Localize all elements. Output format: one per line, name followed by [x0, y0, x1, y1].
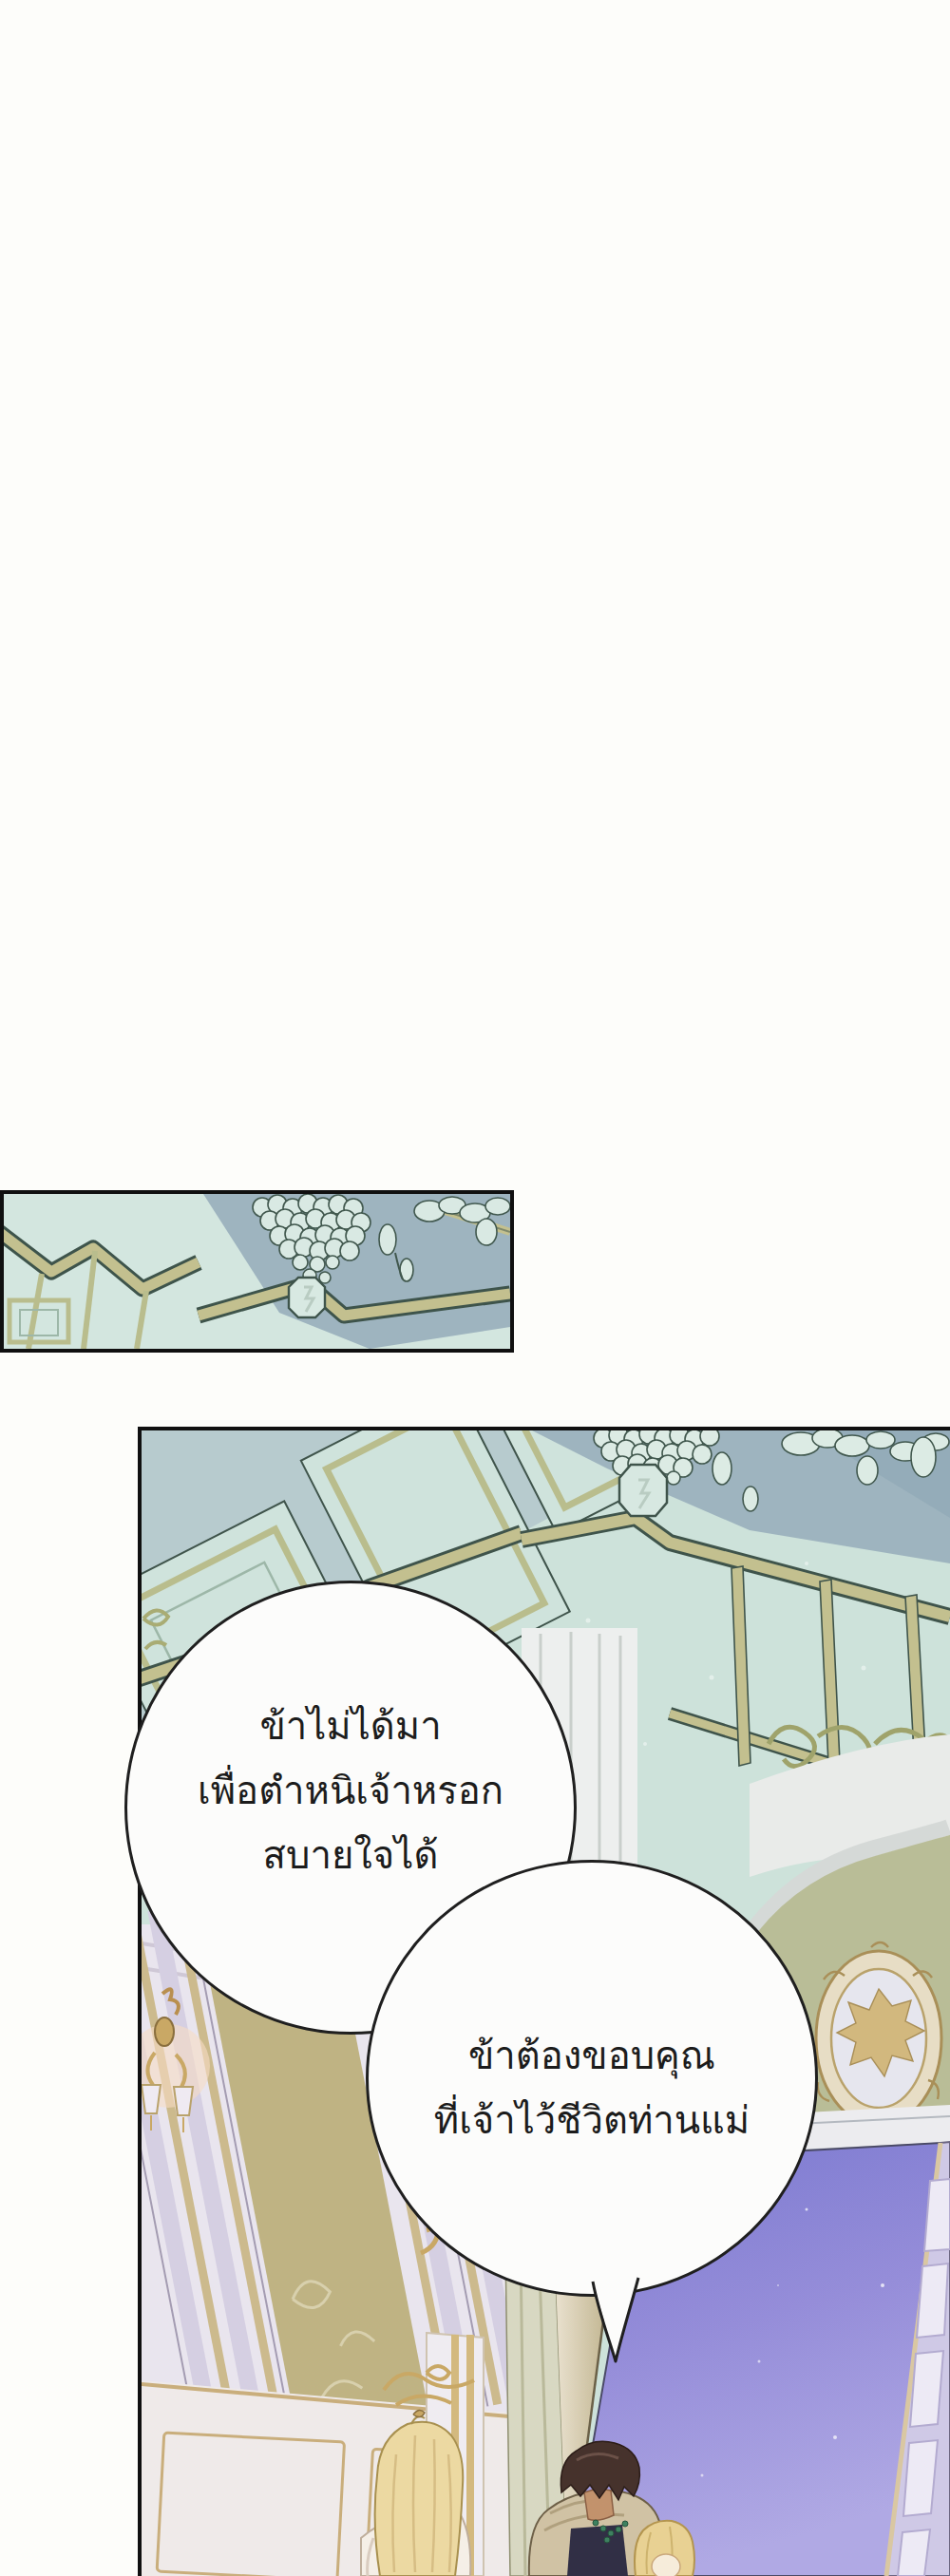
bubble1-line: สบายใจได้	[263, 1823, 439, 1887]
speech-bubble-2: ข้าต้องขอบคุณ ที่เจ้าไว้ชีวิตท่านแม่	[366, 1860, 818, 2297]
speech-bubble-tail	[581, 2274, 648, 2369]
bubble2-line: ที่เจ้าไว้ชีวิตท่านแม่	[434, 2088, 750, 2152]
bubble2-line: ข้าต้องขอบคุณ	[468, 2023, 715, 2088]
comic-page: ข้าไม่ได้มา เพื่อตำหนิเจ้าหรอก สบายใจได้…	[0, 0, 950, 2576]
panel-ceiling-strip	[0, 1190, 514, 1353]
child-blonde	[635, 2521, 694, 2576]
ceiling-strip-art	[4, 1194, 510, 1349]
bubble1-line: ข้าไม่ได้มา	[259, 1694, 441, 1758]
bubble1-line: เพื่อตำหนิเจ้าหรอก	[198, 1758, 503, 1823]
gold-medallion	[816, 1942, 941, 2131]
